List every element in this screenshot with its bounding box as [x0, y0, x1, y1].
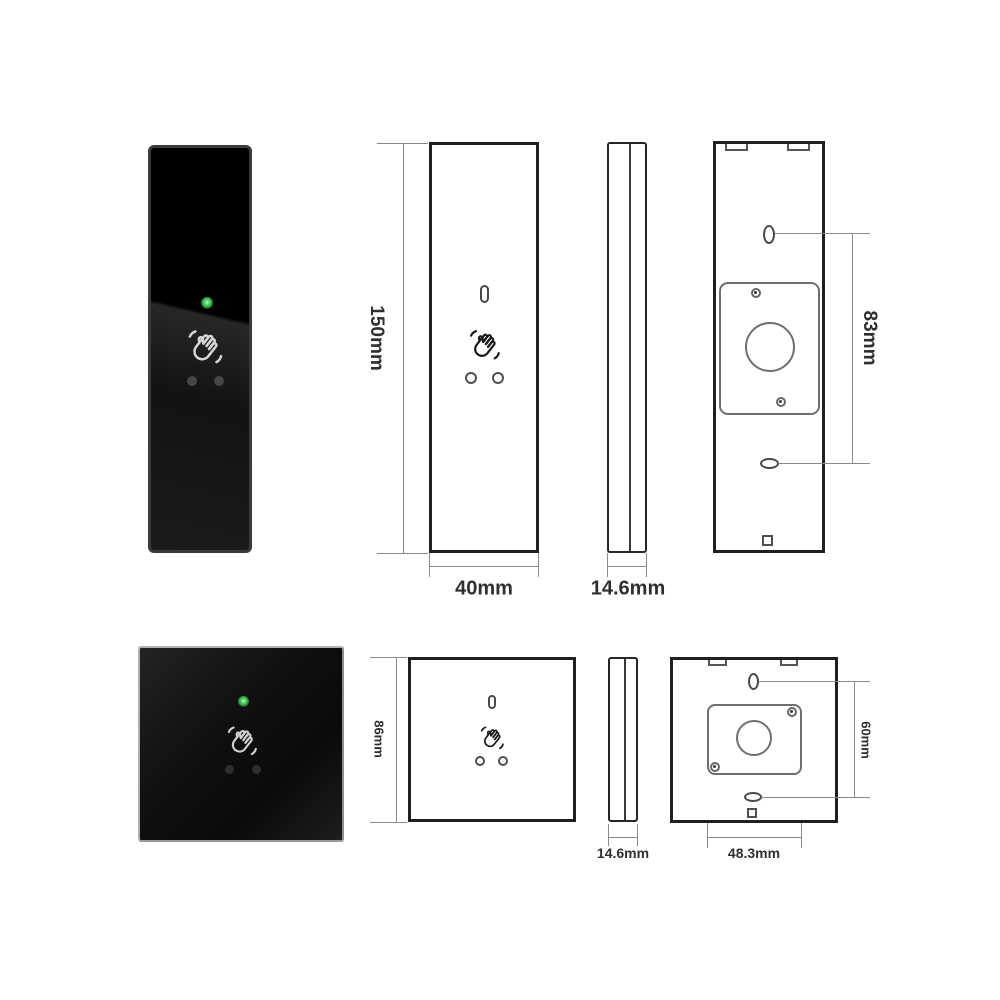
side-view-drawing-square	[608, 657, 638, 822]
depth-dimension-label: 14.6mm	[597, 845, 649, 861]
height-dimension-label: 150mm	[365, 305, 387, 371]
mounting-notch	[725, 144, 748, 151]
dimension-tick	[637, 824, 638, 846]
screw-dot	[713, 765, 716, 768]
screw-dot	[754, 291, 757, 294]
dimension-tick	[377, 553, 428, 554]
dimension-tick	[801, 823, 802, 848]
dimension-tick	[370, 822, 407, 823]
mounting-notch	[780, 660, 798, 666]
sensor-circle	[475, 756, 485, 766]
sensor-circle	[492, 372, 504, 384]
product-photo-vertical	[148, 145, 252, 553]
dimension-line-width	[429, 566, 539, 567]
sensor-circle	[498, 756, 508, 766]
dimension-connector	[778, 463, 870, 464]
led-indicator	[201, 297, 213, 309]
led-indicator	[238, 696, 249, 707]
dimension-tick	[607, 553, 608, 577]
cable-square-hole	[747, 808, 757, 818]
side-view-seam	[624, 659, 626, 820]
sensor-dot	[214, 376, 224, 386]
dimension-tick	[608, 824, 609, 846]
dimension-tick	[646, 553, 647, 577]
dimension-connector	[762, 797, 870, 798]
hand-wave-icon	[465, 324, 504, 366]
sensor-dot	[252, 765, 261, 774]
mounting-notch	[787, 144, 810, 151]
hole-spacing-label: 83mm	[858, 311, 880, 366]
screw-hole-slot-top	[748, 673, 759, 690]
sensor-dot	[225, 765, 234, 774]
dimension-line-depth	[608, 837, 638, 838]
hand-wave-icon	[183, 325, 227, 369]
dimension-tick	[538, 553, 539, 577]
product-dimension-sheet: 150mm 40mm 14.6mm 83mm 86mm	[0, 0, 1000, 1000]
side-view-drawing-tall	[607, 142, 647, 553]
screw-hole-slot-bottom	[744, 792, 762, 802]
depth-dimension-label: 14.6mm	[591, 578, 666, 601]
hole-spacing-label: 60mm	[859, 721, 874, 759]
width-dimension-label: 40mm	[455, 578, 513, 601]
dimension-tick	[370, 657, 407, 658]
dimension-line-hole-spacing	[852, 233, 853, 464]
wire-hole-circle	[745, 322, 795, 372]
hand-wave-icon	[223, 722, 261, 760]
screw-hole-slot-bottom	[760, 458, 779, 469]
screw-hole-slot-top	[763, 225, 775, 244]
side-view-seam	[629, 144, 631, 551]
mounting-notch	[708, 660, 727, 666]
screw-dot	[779, 400, 782, 403]
dimension-tick	[707, 823, 708, 848]
dimension-line-height	[396, 657, 397, 822]
cable-square-hole	[762, 535, 773, 546]
dimension-line-hole-spacing	[854, 681, 855, 797]
plate-width-label: 48.3mm	[728, 845, 780, 861]
sensor-dot	[187, 376, 197, 386]
hand-wave-icon	[477, 722, 507, 754]
led-slot	[480, 285, 489, 303]
screw-dot	[790, 710, 793, 713]
sensor-circle	[465, 372, 477, 384]
height-dimension-label: 86mm	[372, 720, 387, 758]
wire-hole-circle	[736, 720, 772, 756]
dimension-connector	[775, 233, 870, 234]
dimension-tick	[377, 143, 428, 144]
product-photo-square	[138, 646, 344, 842]
dimension-line-depth	[607, 566, 647, 567]
dimension-tick	[429, 553, 430, 577]
dimension-line-height	[403, 143, 404, 553]
dimension-line-plate-width	[707, 837, 802, 838]
led-slot	[488, 695, 496, 709]
